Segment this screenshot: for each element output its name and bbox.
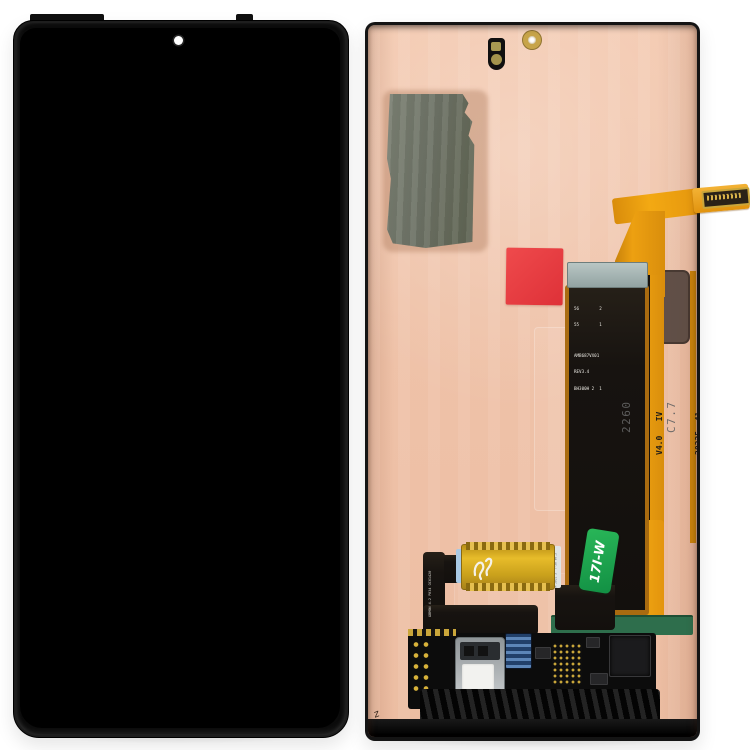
back-assembly: V4.0 IV 20235 41 56 2 55 1 AMB687VX01 RE… (365, 22, 700, 741)
btb-connector-pins (707, 193, 741, 201)
punch-hole-camera (174, 36, 183, 45)
panel-edge-shading (368, 25, 697, 737)
front-screen (20, 28, 340, 728)
product-photo: V4.0 IV 20235 41 56 2 55 1 AMB687VX01 RE… (0, 0, 750, 750)
front-assembly (13, 20, 349, 738)
